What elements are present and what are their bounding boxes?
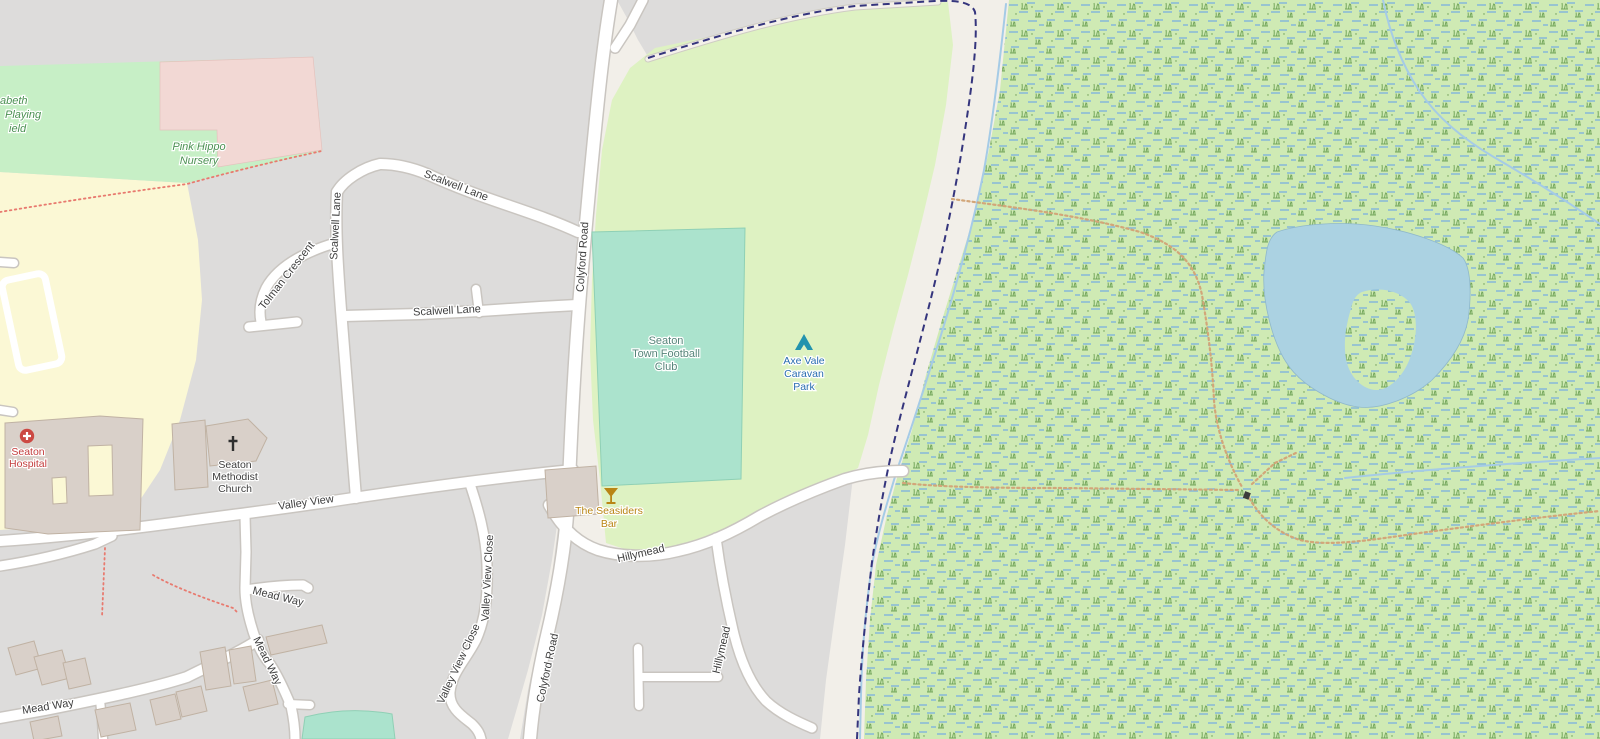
label-caravan-park-3: Park xyxy=(793,381,815,393)
label-caravan-park-1: Axe Vale xyxy=(783,355,824,367)
small-pitch-bottom xyxy=(302,711,395,739)
label-hospital-2: Hospital xyxy=(9,458,47,470)
label-playing-field-3: ield xyxy=(9,123,27,135)
map-svg: Colyford Road Colyford Road Scalwell Lan… xyxy=(0,0,1600,739)
label-church-3: Church xyxy=(218,483,252,495)
label-bar-1: The Seasiders xyxy=(575,505,643,517)
label-football-club-1: Seaton xyxy=(649,335,684,347)
label-football-club-3: Club xyxy=(655,361,678,373)
road-edge-stub-1 xyxy=(0,262,14,263)
building xyxy=(200,647,231,690)
label-nursery-2: Nursery xyxy=(180,155,220,167)
map-canvas[interactable]: Colyford Road Colyford Road Scalwell Lan… xyxy=(0,0,1600,739)
label-hospital-1: Seaton xyxy=(11,446,44,458)
road-mead-way-stub-t xyxy=(288,704,310,705)
label-football-club-2: Town Football xyxy=(632,348,700,360)
building xyxy=(229,646,256,684)
label-nursery-1: Pink Hippo xyxy=(172,141,225,153)
label-playing-field-2: Playing xyxy=(5,109,42,121)
hospital-icon xyxy=(20,429,34,443)
building-church-west xyxy=(172,420,208,490)
building xyxy=(150,694,181,725)
label-bar-2: Bar xyxy=(601,518,618,530)
label-church-1: Seaton xyxy=(218,459,251,471)
building xyxy=(176,686,207,717)
label-church-2: Methodist xyxy=(212,471,258,483)
label-caravan-park-2: Caravan xyxy=(784,368,824,380)
road-tolman-end xyxy=(249,322,297,327)
label-playing-field-1: abeth xyxy=(0,95,28,107)
road-edge-stub-2 xyxy=(0,410,13,412)
